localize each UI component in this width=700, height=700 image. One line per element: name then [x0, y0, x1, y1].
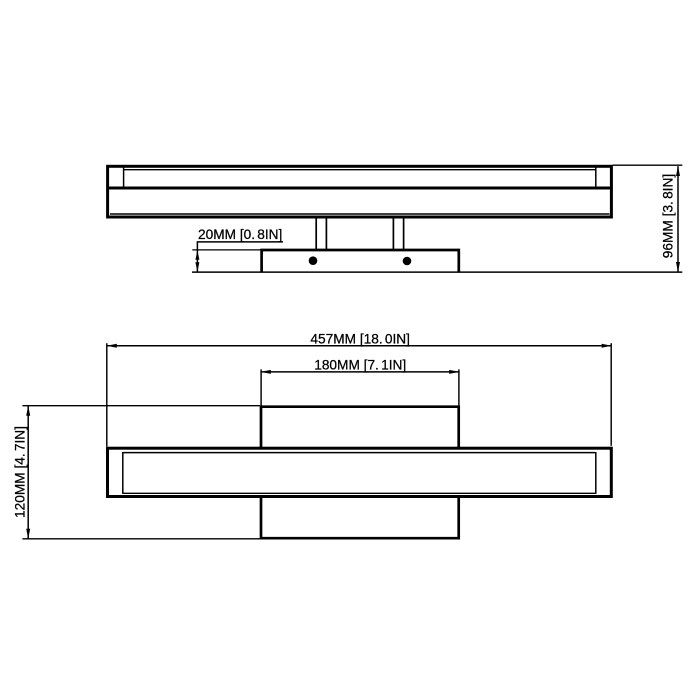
svg-text:120MM [4.7IN]: 120MM [4.7IN] [12, 426, 27, 518]
svg-text:20MM [0.8IN]: 20MM [0.8IN] [198, 227, 282, 242]
svg-text:180MM [7.1IN]: 180MM [7.1IN] [314, 357, 406, 372]
svg-text:96MM [3.8IN]: 96MM [3.8IN] [660, 174, 675, 258]
svg-text:457MM [18.0IN]: 457MM [18.0IN] [310, 331, 410, 346]
